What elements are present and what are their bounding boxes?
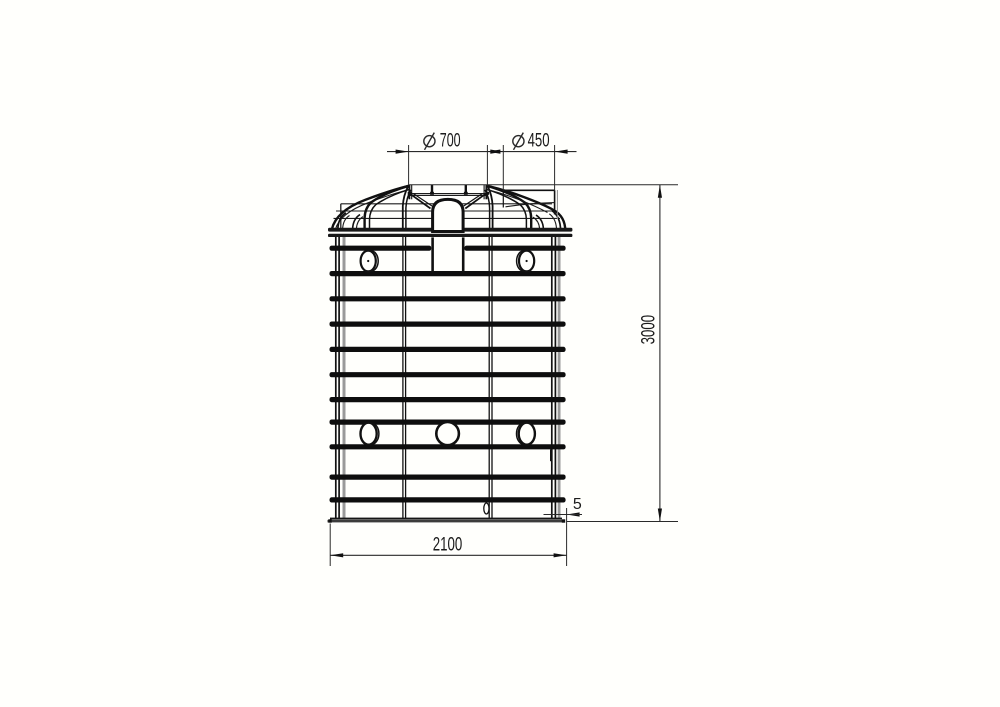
svg-text:5: 5 xyxy=(573,496,582,513)
svg-text:450: 450 xyxy=(528,130,550,151)
svg-text:3000: 3000 xyxy=(639,315,660,345)
svg-text:700: 700 xyxy=(440,130,461,151)
svg-text:2100: 2100 xyxy=(433,535,463,556)
